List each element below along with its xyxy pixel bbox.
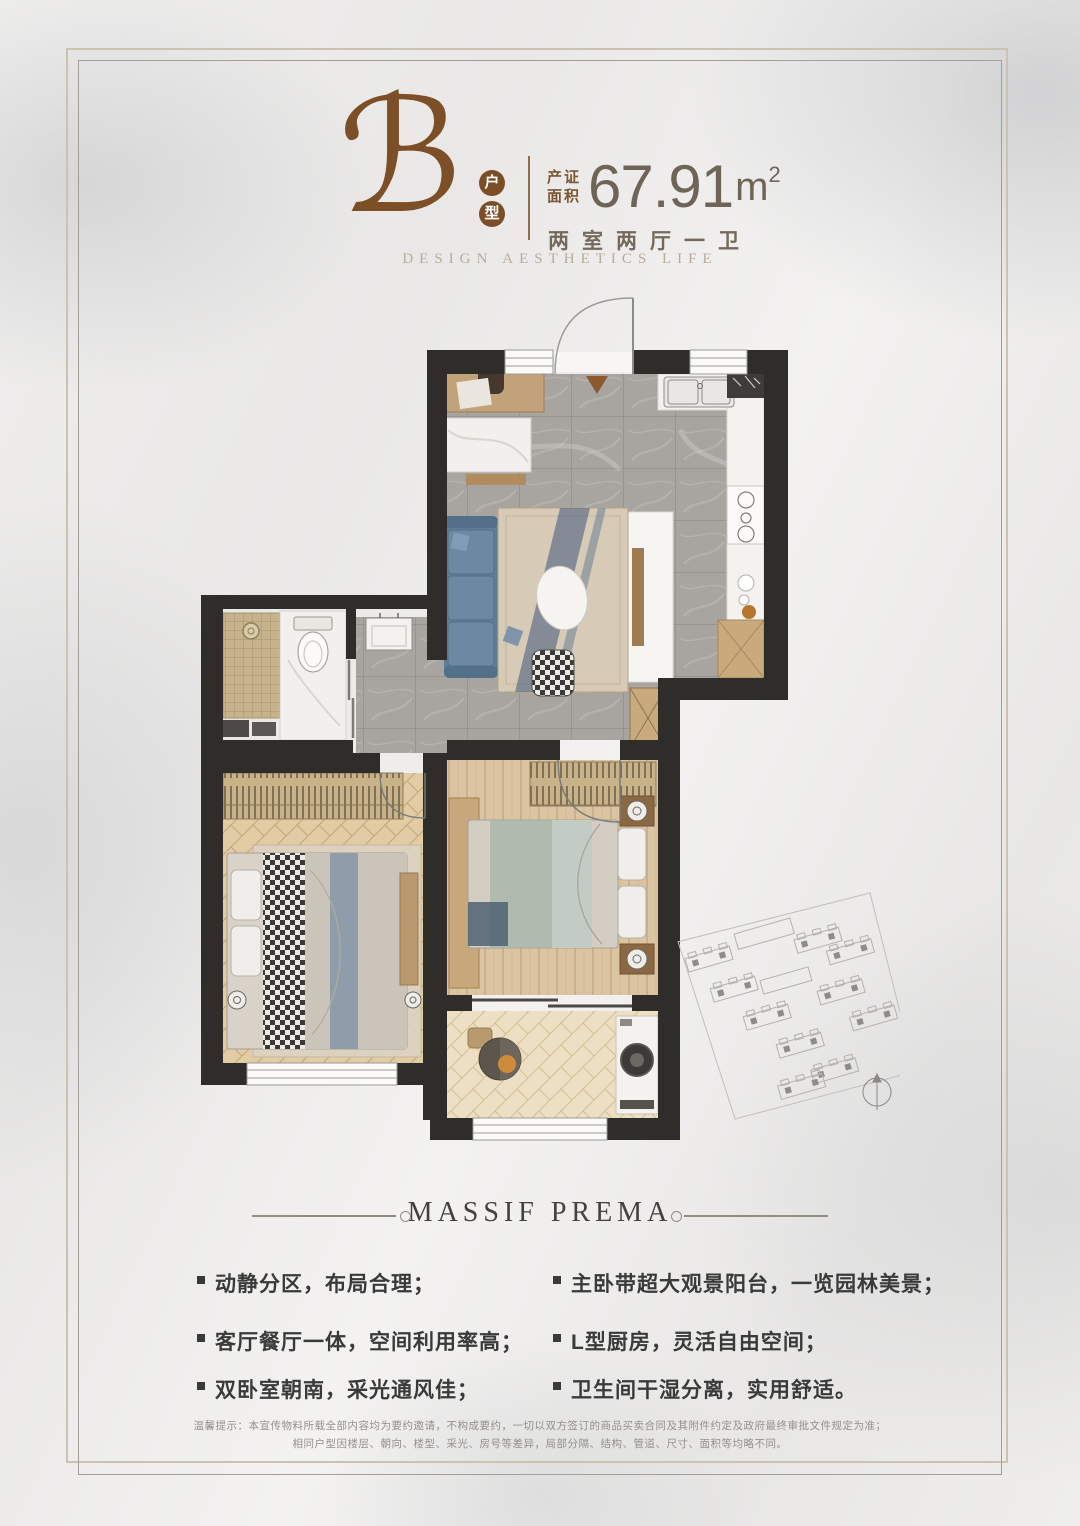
feature-text: 卫生间干湿分离，实用舒适。: [571, 1374, 857, 1404]
section-title: MASSIF PREMA: [0, 1197, 1080, 1229]
title-ring-left: [400, 1211, 411, 1222]
gas-hob: [727, 486, 764, 544]
title-rule-right: [684, 1215, 828, 1217]
window: [690, 350, 747, 374]
unit-letter-b: ℬ: [338, 78, 462, 236]
unit-badge-xing: 型: [479, 201, 505, 227]
area-label: 产证 面积: [547, 168, 581, 206]
disclaimer-line2: 相同户型因楼层、朝向、楼型、采光、房号等差异，局部分隔、结构、管道、尺寸、面积等…: [140, 1436, 940, 1453]
header-divider: [528, 156, 530, 240]
disclaimer-line1: 温馨提示：本宣传物料所载全部内容均为要约邀请，不构成要约，一切以双方签订的商品买…: [140, 1418, 940, 1435]
bathroom: [223, 611, 346, 740]
feature-text: L型厨房，灵活自由空间；: [571, 1326, 827, 1356]
area-label-line2: 面积: [547, 187, 581, 206]
bullet-icon: [553, 1382, 561, 1390]
master-bedroom: [447, 760, 658, 995]
vanity-sink: [366, 613, 412, 650]
plates: [738, 575, 754, 591]
area-label-line1: 产证: [547, 168, 581, 187]
feature-text: 动静分区，布局合理；: [215, 1268, 435, 1298]
feature-text: 主卧带超大观景阳台，一览园林美景；: [571, 1268, 945, 1298]
bullet-icon: [197, 1334, 205, 1342]
window: [247, 1063, 397, 1085]
dining-table: [441, 418, 531, 472]
bullet-icon: [553, 1276, 561, 1284]
bullet-icon: [197, 1382, 205, 1390]
bullet-icon: [197, 1276, 205, 1284]
wardrobe: [223, 773, 403, 819]
title-rule-left: [252, 1215, 396, 1217]
title-ring-right: [671, 1211, 682, 1222]
pillow: [231, 870, 261, 920]
shower-drain: [243, 623, 259, 639]
bullet-icon: [553, 1334, 561, 1342]
living-room: [444, 508, 628, 696]
feature-item: 动静分区，布局合理；: [197, 1268, 435, 1298]
bench: [400, 873, 418, 985]
floor-plan: [190, 290, 900, 1160]
kitchen-sink: [664, 377, 734, 407]
area-row: 产证 面积 67.91 m 2: [547, 158, 781, 216]
window: [473, 1118, 607, 1140]
area-superscript: 2: [769, 164, 781, 186]
feature-item: 双卧室朝南，采光通风佳；: [197, 1374, 479, 1404]
washing-machine: [616, 1016, 658, 1114]
balcony-sliding-door: [470, 1000, 636, 1006]
unit-badge-hu: 户: [479, 170, 505, 196]
area-unit: m: [735, 158, 768, 216]
bathroom-sliding-door: [349, 660, 353, 738]
feature-text: 客厅餐厅一体，空间利用率高；: [215, 1326, 523, 1356]
sofa: [444, 516, 498, 678]
feature-text: 双卧室朝南，采光通风佳；: [215, 1374, 479, 1404]
feature-item: 卫生间干湿分离，实用舒适。: [553, 1374, 857, 1404]
pouf: [532, 650, 574, 696]
secondary-bedroom: [223, 773, 423, 1063]
bed: [227, 853, 407, 1049]
lamp: [228, 991, 246, 1009]
feature-item: 客厅餐厅一体，空间利用率高；: [197, 1326, 523, 1356]
feature-item: L型厨房，灵活自由空间；: [553, 1326, 827, 1356]
feature-item: 主卧带超大观景阳台，一览园林美景；: [553, 1268, 945, 1298]
tagline: DESIGN AESTHETICS LIFE: [330, 251, 790, 268]
dining-area: [441, 366, 544, 485]
pillow: [618, 886, 646, 938]
lamp: [405, 992, 421, 1008]
pillow: [618, 828, 646, 880]
dining-bench: [466, 474, 526, 485]
pillow: [231, 926, 261, 976]
window: [505, 350, 553, 374]
balcony: [447, 1000, 658, 1118]
area-value: 67.91: [588, 158, 733, 216]
bath-stool: [223, 720, 249, 737]
